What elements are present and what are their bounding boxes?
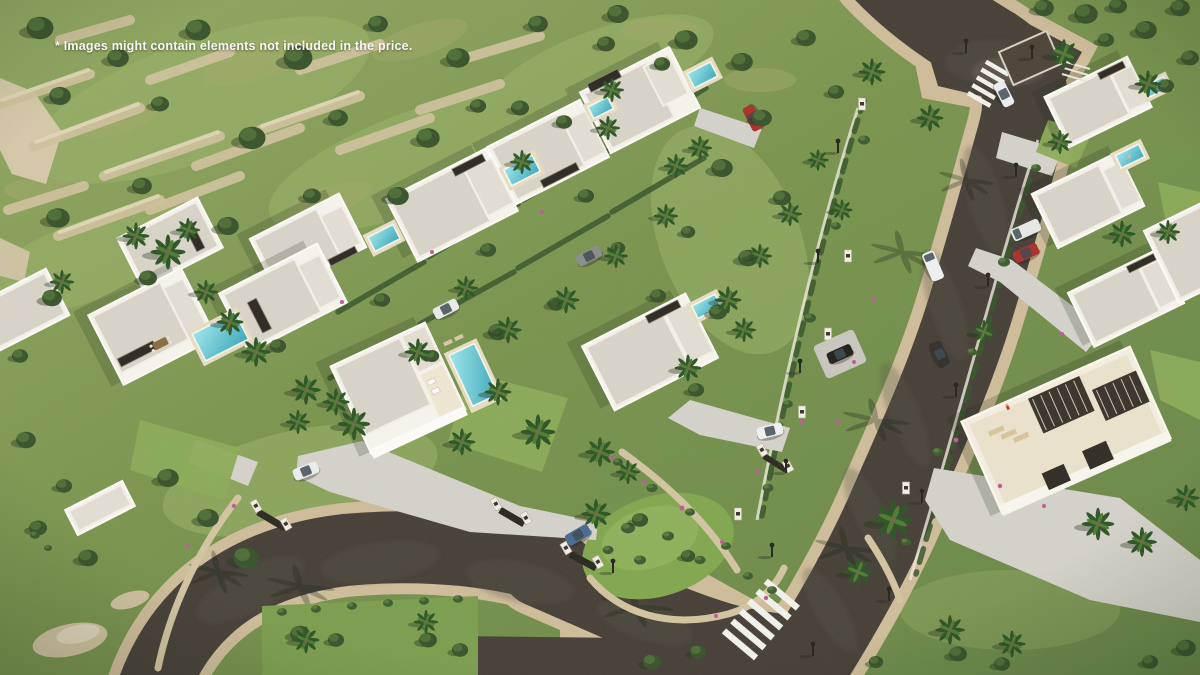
- render-scene: [0, 0, 1200, 675]
- vignette-overlay: [0, 0, 1200, 675]
- aerial-render-image: * Images might contain elements not incl…: [0, 0, 1200, 675]
- watermark-text: * Images might contain elements not incl…: [55, 39, 413, 53]
